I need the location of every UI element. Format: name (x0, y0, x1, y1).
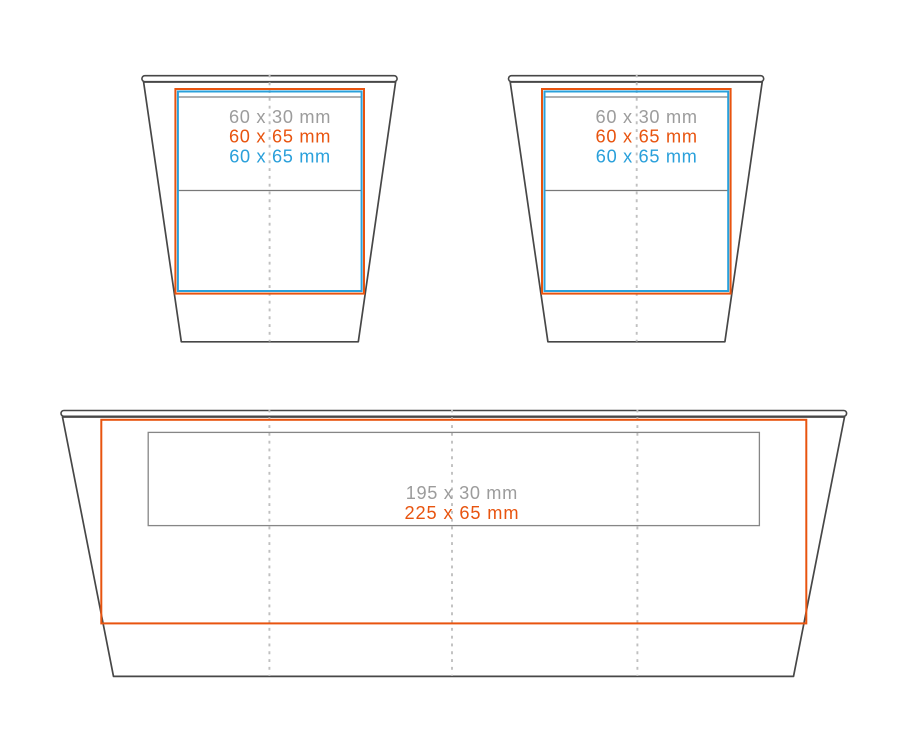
svg-text:60 x 65 mm: 60 x 65 mm (596, 146, 697, 166)
svg-text:60 x 30 mm: 60 x 30 mm (596, 107, 698, 127)
svg-text:195 x 30 mm: 195 x 30 mm (406, 483, 518, 503)
svg-text:60 x 65 mm: 60 x 65 mm (229, 146, 330, 166)
svg-text:60 x 65 mm: 60 x 65 mm (229, 127, 331, 147)
svg-text:60 x 65 mm: 60 x 65 mm (596, 127, 698, 147)
svg-text:60 x 30 mm: 60 x 30 mm (229, 107, 331, 127)
svg-text:225 x 65 mm: 225 x 65 mm (405, 503, 519, 523)
